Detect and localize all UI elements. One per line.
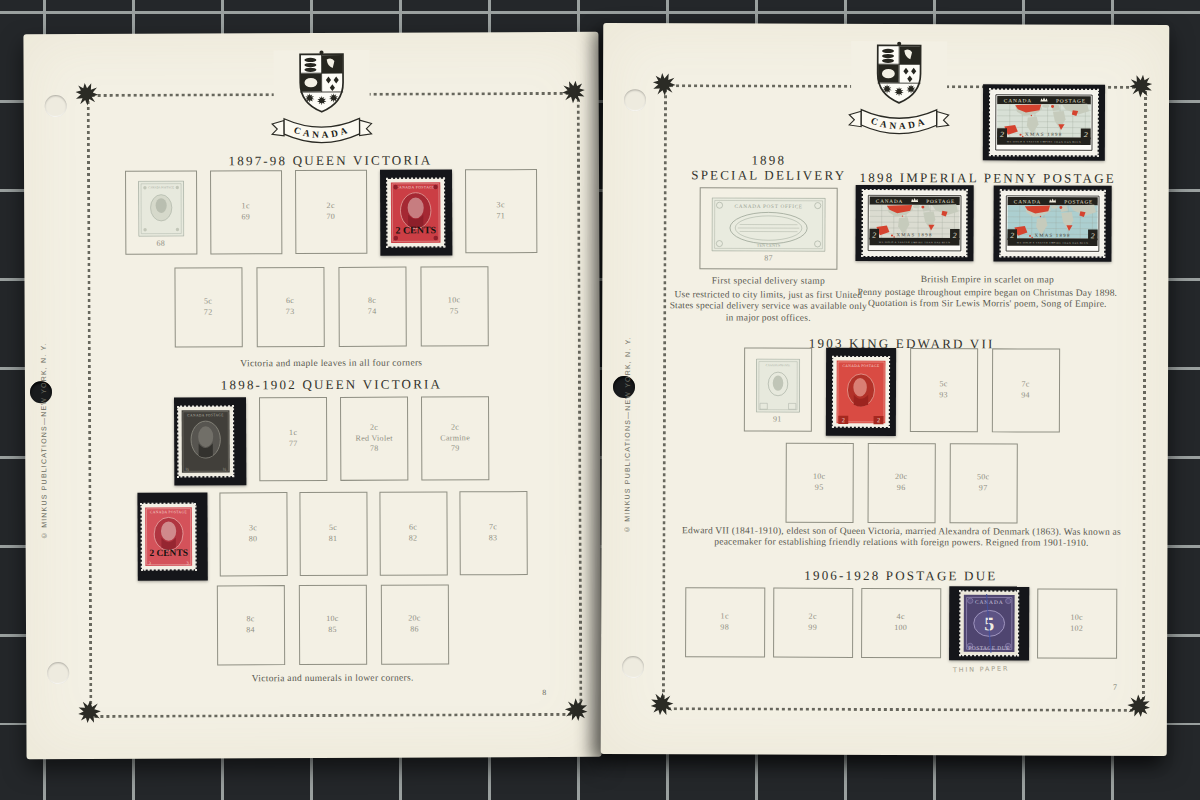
printed-stamp-country: CANADA POSTAGE [148, 185, 174, 189]
stamp-space: 3c80 [219, 492, 287, 576]
mounted-stamp [855, 185, 973, 261]
section-paragraph: Edward VII (1841-1910), eldest son of Qu… [681, 525, 1121, 549]
canada-crest [261, 49, 381, 155]
stamp-space: 8c84 [216, 585, 284, 665]
stamp-space: 10c102 [1037, 589, 1117, 659]
printed-stamp-space: CANADA POST OFFICE TEN CENTS 87 [699, 187, 837, 269]
stamp-inscription: POSTAGE DUE [968, 645, 1009, 651]
stamp-space: 10c85 [298, 585, 366, 665]
stamp-space: 4c100 [861, 588, 941, 658]
mounted-stamp: CANADA POSTAGE 2 2 [825, 348, 895, 436]
printed-stamp-space: CANADA POSTAGE 68 [125, 171, 197, 255]
binder-hole [45, 95, 67, 117]
stamp-row: CANADA POSTAGE 68 1c69 2c70 CANADA POSTA… [87, 169, 574, 257]
stamp-row: 5c72 6c73 8c74 10c75 [87, 266, 574, 348]
copyright-text: © MINKUS PUBLICATIONS—NEW YORK, N. Y. [40, 329, 48, 539]
heading-special-delivery: SPECIAL DELIVERY [664, 167, 874, 184]
stamp-space: 7c83 [459, 491, 527, 575]
printed-stamp-title: CANADA POST OFFICE [734, 203, 802, 209]
stamp-value: 2 [876, 416, 879, 423]
stamp-country: CANADA POSTAGE [150, 510, 187, 514]
catalog-number: 68 [156, 238, 165, 249]
stamp-space: 1c98 [685, 587, 765, 657]
stamp-space: 5c93 [909, 348, 977, 432]
stamp-space: 2cRed Violet78 [340, 397, 408, 481]
mounted-stamp: CANADA 5 POSTAGE DUE [949, 586, 1029, 660]
edward-red-stamp: CANADA POSTAGE 2 2 [832, 357, 888, 427]
stamp-space: 20c86 [380, 584, 448, 664]
album-page-right: © MINKUS PUBLICATIONS—NEW YORK, N. Y. 18… [601, 23, 1170, 756]
stamp-country: CANADA [974, 599, 1003, 605]
stamp-space: 50c97 [949, 443, 1017, 523]
stamp-space: 8c74 [338, 267, 406, 347]
printed-stamp-country: CANADA POSTAGE [765, 363, 790, 367]
catalog-number: 91 [773, 414, 782, 425]
section-caption: Victoria and maple leaves in all four co… [88, 357, 575, 369]
stamp-space: 2c99 [773, 588, 853, 658]
victoria-red-overprint-stamp: CANADA POSTAGE 2 CENTS [387, 178, 444, 246]
stamp-row: CANADA POSTAGE 3 3 2 CENTS 3c80 5c81 6c8… [88, 491, 575, 581]
album-page-left: © MINKUS PUBLICATIONS—NEW YORK, N. Y. 18… [23, 32, 601, 760]
binder-hole [624, 89, 646, 111]
printed-special-delivery-stamp: CANADA POST OFFICE TEN CENTS [711, 197, 825, 251]
mounted-stamp [983, 84, 1105, 160]
stamp-space: 6c73 [256, 267, 324, 347]
stamp-space: 7c94 [991, 348, 1059, 432]
stamp-value: ½ [186, 467, 190, 472]
section-paragraph: Penny postage throughout empire began on… [854, 287, 1120, 311]
photo-of-stamp-album-pages: { "banner": "CANADA", "colors": { "page"… [0, 0, 1200, 800]
stamp-value: 2 [841, 416, 844, 423]
map-stamp-pale [990, 89, 1098, 155]
stamp-space: 20c96 [867, 443, 935, 523]
section-paragraph: Use restricted to city limits, just as f… [668, 289, 868, 324]
section-caption: Victoria and numerals in lower corners. [89, 672, 576, 684]
stamp-space: 6c82 [379, 491, 447, 575]
stamp-space: 1c77 [259, 397, 327, 481]
stamp-overprint: 2 CENTS [395, 224, 436, 235]
stamp-row: CANADA POSTAGE 91 CANADA POSTAGE 2 2 [663, 347, 1140, 437]
stamp-space: 10c75 [420, 266, 488, 346]
catalog-number: 87 [764, 253, 773, 264]
stamp-row: 10c95 20c96 50c97 [663, 442, 1140, 524]
page-number: 7 [1113, 683, 1117, 692]
stamp-space: 2c70 [295, 170, 367, 254]
stamp-country: CANADA POSTAGE [396, 185, 435, 189]
stamp-row: 8c84 10c85 20c86 [89, 584, 576, 666]
stamp-space: 3c71 [465, 169, 537, 253]
copyright-text: © MINKUS PUBLICATIONS—NEW YORK, N. Y. [623, 323, 631, 533]
map-stamp-blue [1000, 190, 1104, 256]
stamp-space: 5c72 [174, 267, 242, 347]
mounted-stamp: CANADA POSTAGE ½ ½ [174, 397, 246, 485]
page-number: 8 [542, 688, 546, 697]
printed-stamp-space: CANADA POSTAGE 91 [743, 348, 811, 432]
victoria-black-stamp: CANADA POSTAGE ½ ½ [178, 406, 233, 476]
stamp-overprint: 2 CENTS [149, 548, 188, 558]
map-stamp-gray [862, 190, 966, 256]
canada-crest [839, 40, 959, 145]
section-caption: British Empire in scarlet on map [847, 274, 1127, 285]
postage-due-stamp: CANADA 5 POSTAGE DUE [960, 591, 1018, 655]
binder-hole [622, 656, 644, 678]
heading-1897-98-queen-victoria: 1897-98 QUEEN VICTORIA [87, 152, 574, 170]
stamp-space: 10c95 [785, 443, 853, 523]
heading-1898-1902-queen-victoria: 1898-1902 QUEEN VICTORIA [88, 376, 575, 394]
printed-stamp-value: TEN CENTS [757, 242, 781, 247]
section-caption: First special delivery stamp [663, 275, 873, 286]
binder-hole [47, 662, 69, 684]
stamp-row: 1c98 2c99 4c100 CANADA 5 POSTAGE DUE 10c… [662, 585, 1139, 661]
victoria-pink-overprint-stamp: CANADA POSTAGE 3 3 2 CENTS [141, 504, 195, 570]
printed-victoria-stamp: CANADA POSTAGE [138, 180, 184, 236]
stamp-space: 1c69 [210, 170, 282, 254]
heading-postage-due: 1906-1928 POSTAGE DUE [662, 567, 1139, 585]
stamp-value: ½ [223, 467, 227, 472]
stamp-country: CANADA POSTAGE [842, 364, 879, 368]
mounted-stamp: CANADA POSTAGE 3 3 2 CENTS [137, 492, 207, 580]
mounted-stamp: CANADA POSTAGE 2 CENTS [380, 169, 452, 255]
mounted-stamp [993, 185, 1111, 261]
stamp-country: CANADA POSTAGE [187, 413, 224, 417]
stamp-space: 2cCarmine79 [421, 396, 489, 480]
stamp-space: 5c81 [299, 492, 367, 576]
stamp-row: CANADA POSTAGE ½ ½ 1c77 2cRed Violet78 2… [88, 396, 575, 486]
printed-edward-stamp: CANADA POSTAGE [755, 358, 799, 412]
